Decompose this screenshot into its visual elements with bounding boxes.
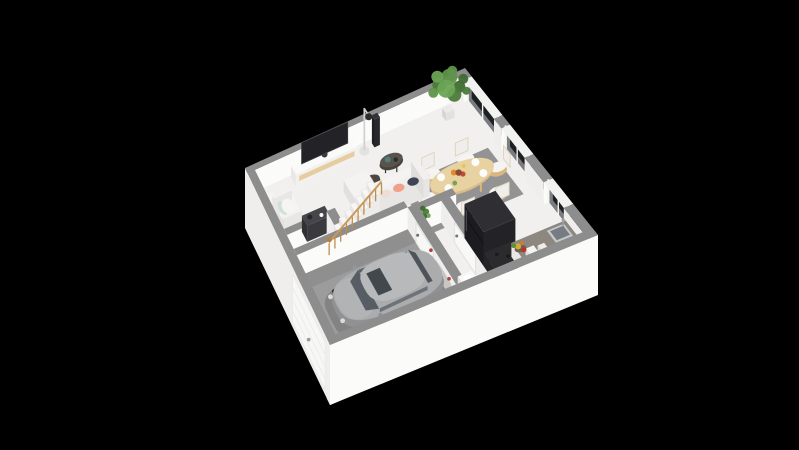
car-mirror [353,266,357,270]
door-handle [416,234,419,237]
burner [495,253,499,257]
decor-bowl [385,157,391,163]
floor-plan-viewport [0,0,799,450]
lamp-head [365,113,372,120]
car-headlight [328,294,333,299]
fruit-red [521,247,526,252]
fruit-yellow [515,243,521,249]
plant-leaves-leaf [458,74,468,84]
burner [506,254,510,258]
decor-item [394,157,398,161]
car-taillight [429,248,433,252]
fruit-green [511,243,516,248]
food-green [452,181,457,186]
plant-leaves-leaf [431,71,443,83]
center-bowl [455,169,461,175]
sofa-arm-right-face [424,178,430,199]
plate [437,173,445,181]
fruit-orange [520,241,524,245]
plant-leaves-leaf [462,87,470,95]
plant-leaves-leaf [437,80,455,98]
floor-plan-render [0,0,799,450]
speaker-face [375,117,380,147]
speaker-side [372,115,375,147]
stair-railing-newel [327,237,332,242]
garage-door-handle [307,338,311,342]
plant-leaves-leaf [447,66,457,76]
food-yellow [462,164,466,168]
car-taillight [447,277,451,281]
door-handle [455,234,458,237]
faucet-head [562,218,565,221]
wall-southeast-side [327,338,331,405]
plant-leaves-leaf [420,206,426,212]
console-item-dark [307,215,312,220]
car-headlight [340,318,345,323]
plant-leaves-leaf [428,88,438,98]
plate [479,169,487,177]
plate [471,158,479,166]
wall-northwest-side [245,168,248,233]
console-item-light [319,213,323,217]
